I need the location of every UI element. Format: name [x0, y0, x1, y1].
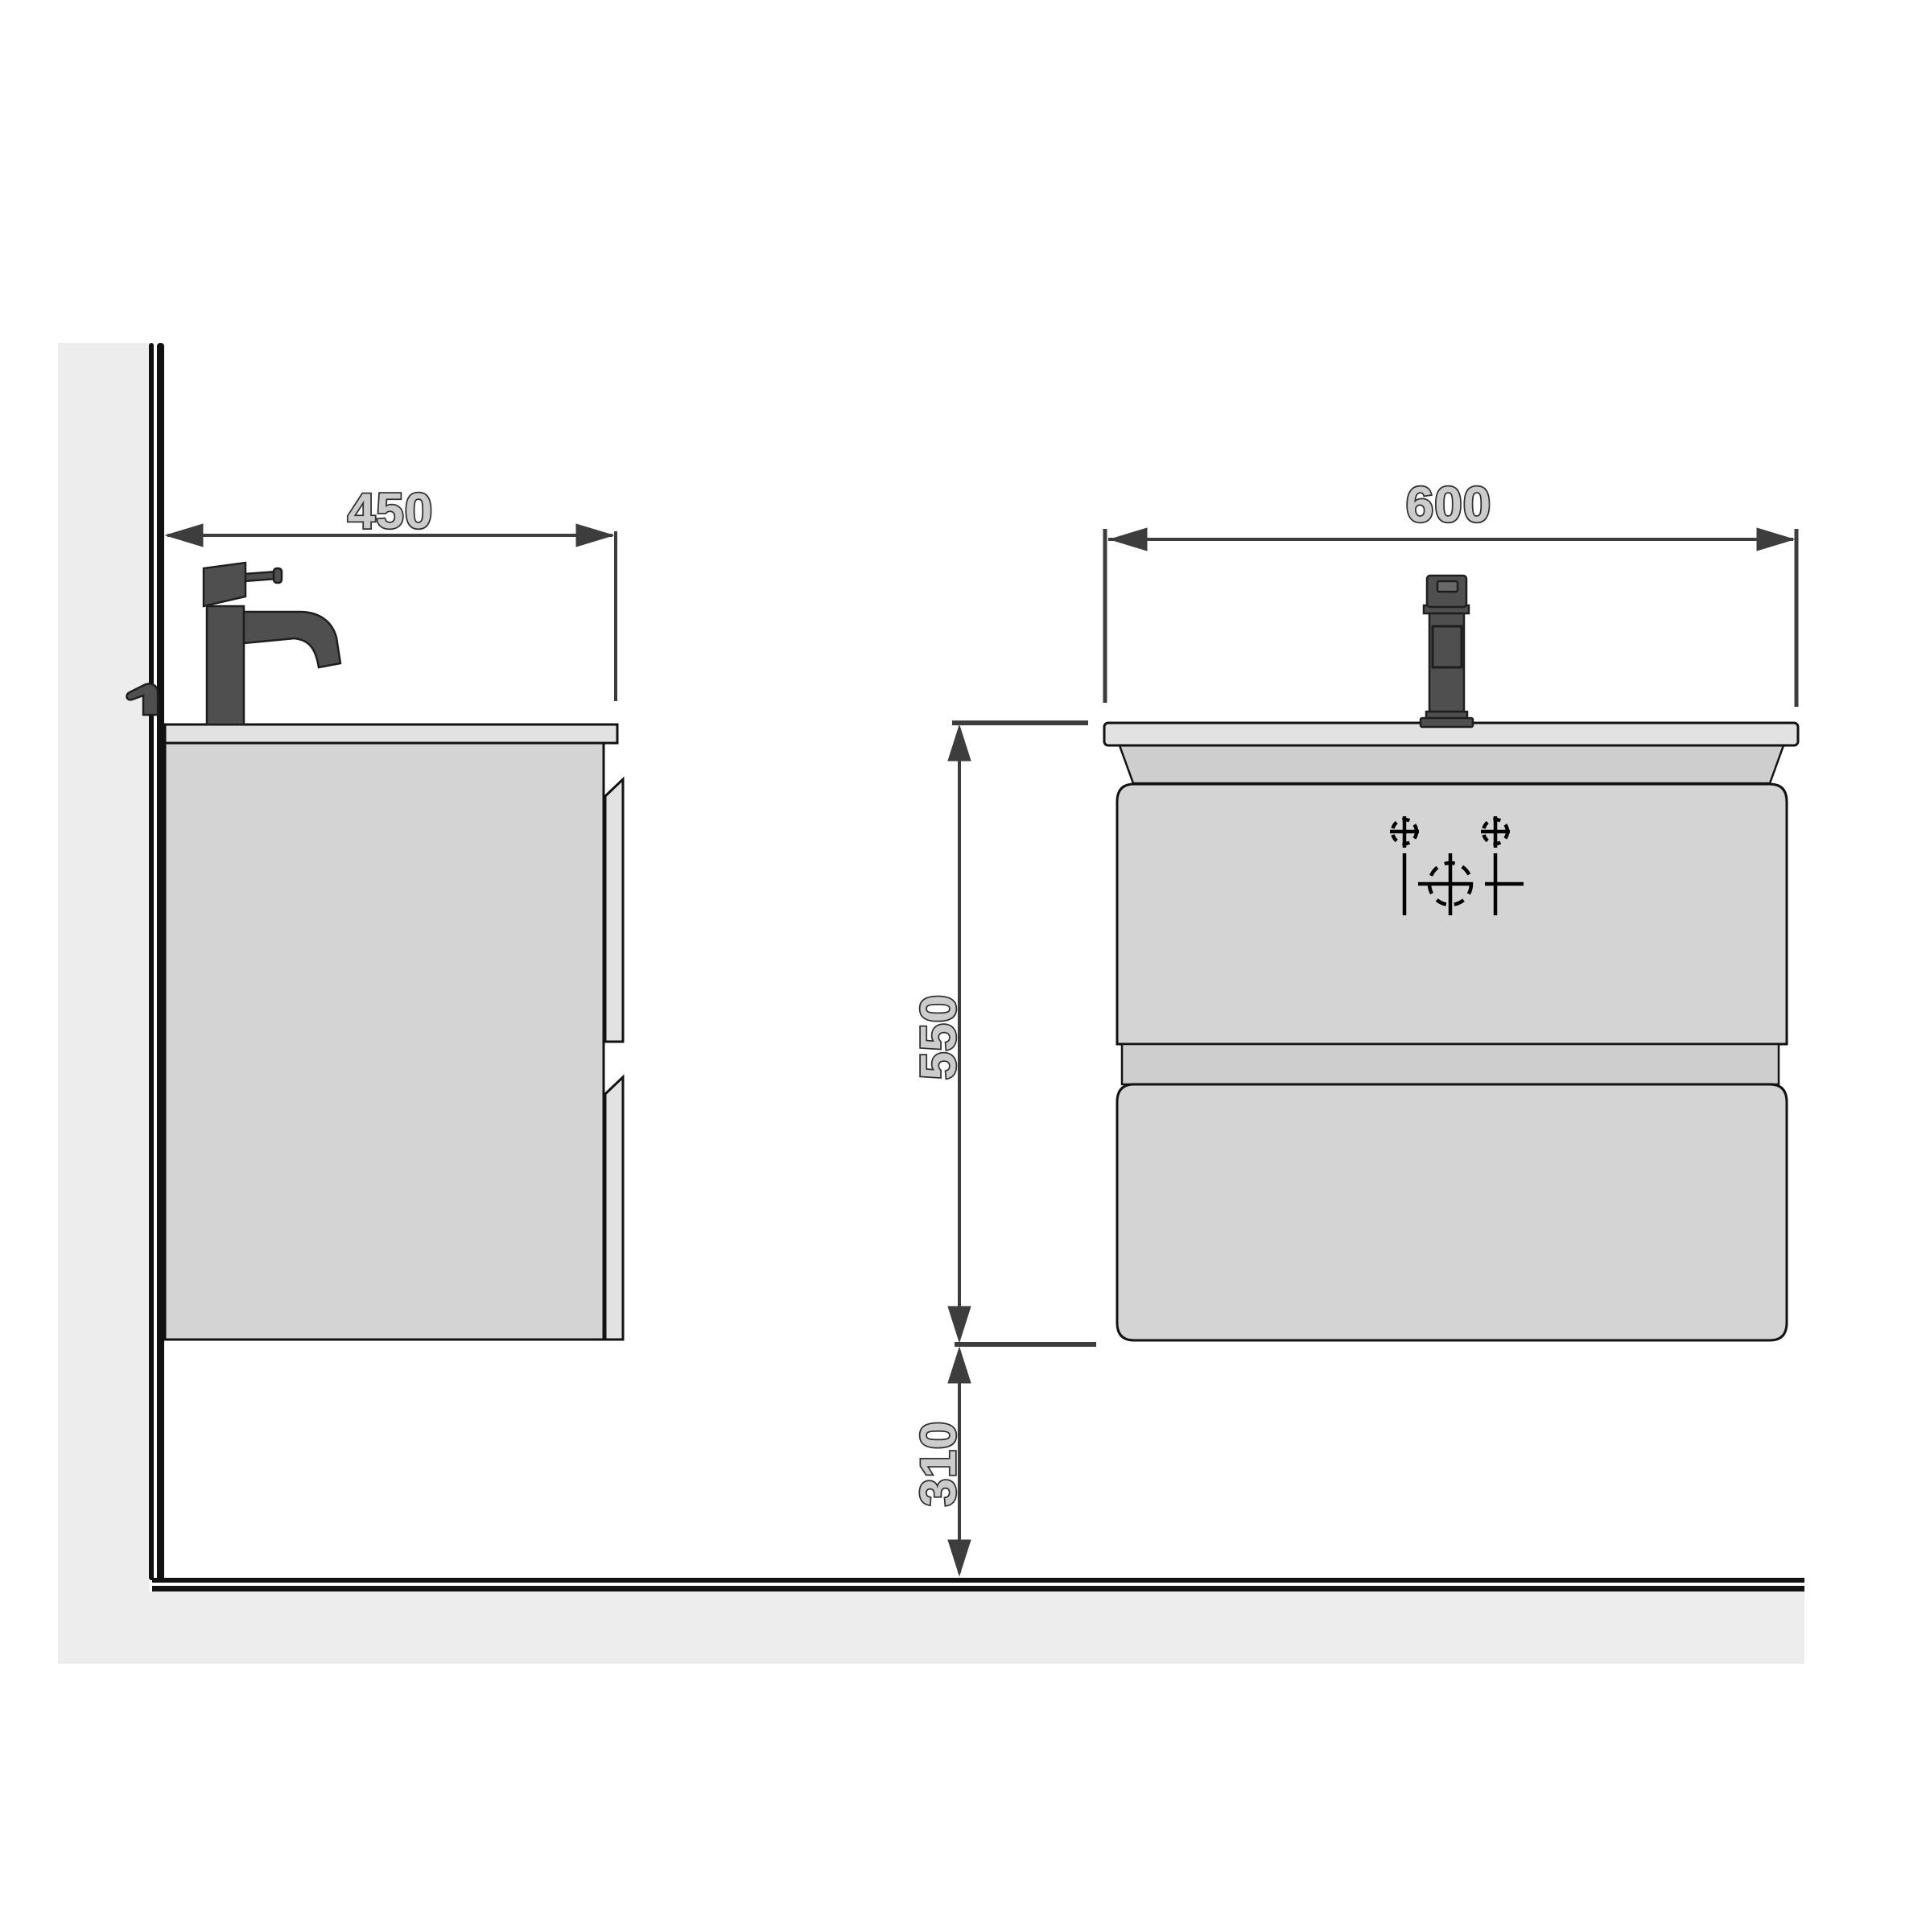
dim-600-arrow-left	[1110, 528, 1147, 551]
side-drawer-front-upper	[605, 779, 623, 1042]
wall-section	[58, 343, 164, 1664]
dim-310-label: 310	[911, 1421, 967, 1506]
dim-310-arrow-up	[948, 1348, 971, 1383]
side-faucet-handle-cap	[204, 563, 245, 606]
front-faucet-base-flange	[1421, 718, 1473, 727]
side-countertop	[165, 724, 617, 743]
floor-shading	[58, 1591, 1804, 1664]
dim-310-arrow-down	[948, 1540, 971, 1575]
side-faucet	[204, 563, 340, 724]
dimension-floor-clearance: 310	[911, 1348, 971, 1575]
dim-600-label: 600	[1406, 477, 1491, 533]
dim-550-label: 550	[911, 994, 967, 1080]
front-faucet-body	[1429, 613, 1464, 715]
side-faucet-lever	[244, 572, 277, 581]
floor-section	[58, 1578, 1804, 1664]
dimension-cabinet-height: 550	[911, 723, 1096, 1344]
wall-shading	[58, 343, 149, 1664]
dim-550-arrow-down	[948, 1307, 971, 1342]
drawing-canvas: 450 600 550 310	[0, 0, 1930, 1932]
front-faucet-handle-slot	[1437, 581, 1458, 592]
dim-450-arrow-left	[166, 524, 203, 547]
vanity-installation-drawing: 450 600 550 310	[0, 0, 1930, 1932]
front-carcass-top-band	[1120, 745, 1784, 783]
dim-450-arrow-right	[576, 524, 613, 547]
dim-450-label: 450	[348, 484, 433, 539]
side-faucet-spout	[244, 612, 340, 667]
dim-600-arrow-right	[1757, 528, 1794, 551]
front-carcass-mid-band	[1122, 1044, 1779, 1084]
side-faucet-body	[207, 606, 244, 724]
front-drawer-lower	[1117, 1084, 1787, 1340]
wall-line-inner	[157, 343, 164, 1580]
floor-line-upper	[152, 1578, 1804, 1583]
side-cabinet-body	[165, 743, 604, 1340]
dim-550-arrow-up	[948, 725, 971, 761]
side-faucet-lever-knob	[274, 568, 282, 583]
front-view	[1104, 576, 1798, 1340]
side-drawer-front-lower	[605, 1077, 623, 1340]
wall-line-outer	[149, 343, 154, 1580]
floor-line-lower	[152, 1586, 1804, 1591]
side-view	[126, 563, 623, 1340]
front-faucet	[1421, 576, 1473, 727]
